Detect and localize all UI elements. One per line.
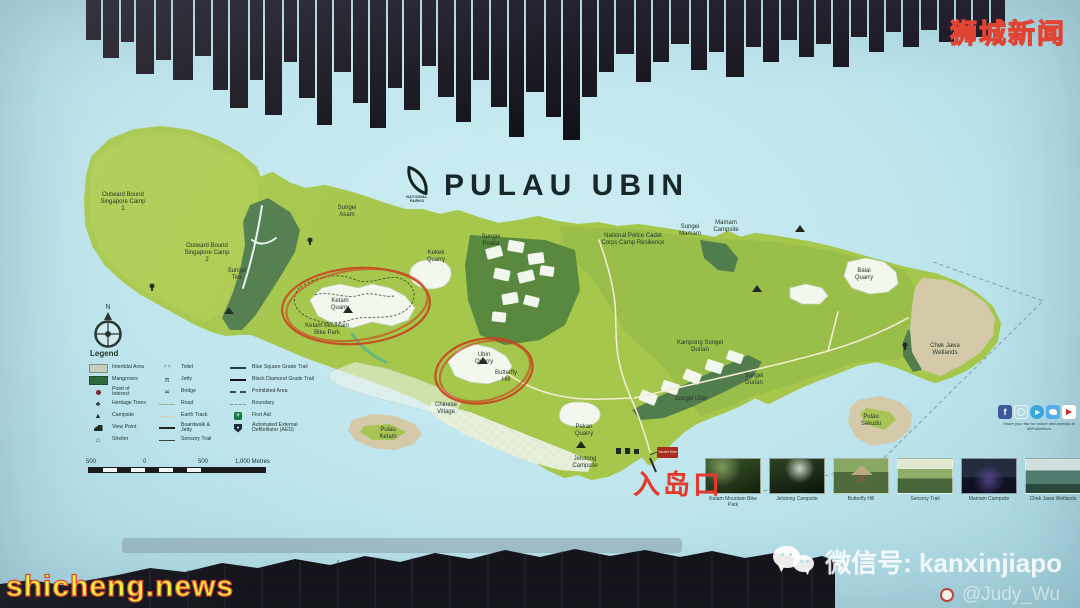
nparks-logo: NATIONAL PARKS xyxy=(402,168,432,204)
nparks-logo-text: NATIONAL PARKS xyxy=(402,195,432,204)
map-label-npcc: National Police Cadet Corps Camp Resilie… xyxy=(596,233,670,247)
view-point-icon xyxy=(94,425,103,431)
legend-item-view-point: View Point xyxy=(88,422,148,434)
facebook-icon: f xyxy=(998,405,1012,419)
first-aid-icon: + xyxy=(234,412,242,420)
instagram-icon xyxy=(1014,405,1028,419)
legend-item-earth-track: Earth Track xyxy=(157,410,219,422)
youtube-icon xyxy=(1062,405,1076,419)
map-label-butterfly-hill: Butterfly Hill xyxy=(492,370,520,384)
tent-icon: ▲ xyxy=(95,413,102,420)
legend-item-intertidal: Intertidal Area xyxy=(88,362,148,374)
legend-item-campsite: ▲Campsite xyxy=(88,410,148,422)
map-label-obs-camp1: Outward Bound Singapore Camp 1 xyxy=(100,192,146,213)
scale-label-1000-metres: 1,000 Metres xyxy=(235,459,270,465)
sensory-trail-line-sample xyxy=(159,440,175,441)
wechat-watermark: 微信号: kanxinjiapo xyxy=(773,543,1062,580)
map-label-sungei-puaka: Sungei Puaka xyxy=(476,234,506,248)
watermark-top-right: 狮城新闻 xyxy=(950,12,1066,51)
photo-sensory-trail: Sensory Trail xyxy=(897,458,953,508)
legend-column-2: ♂♀Toilet πJetty ≍Bridge Road Earth Track… xyxy=(157,362,219,446)
tree-icon: ♣ xyxy=(96,401,101,408)
legend-item-mangroves: Mangroves xyxy=(88,374,148,386)
map-label-ketam-quarry: Ketam Quarry xyxy=(326,298,354,312)
wechat-icon xyxy=(773,546,815,578)
prohibited-area-line-sample xyxy=(230,391,246,393)
map-label-sungei-ubin: Sungei Ubin xyxy=(669,396,713,403)
map-label-sungei-asam: Sungei Asam xyxy=(333,205,361,219)
twitter-icon xyxy=(1046,405,1060,419)
map-label-sungei-mamam: Sungei Mamam xyxy=(675,224,705,238)
photo-chek-jawa: Chek Jawa Wetlands xyxy=(1025,458,1080,508)
legend-title: Legend xyxy=(90,349,324,358)
legend-item-black-diamond-trail: Black Diamond Grade Trail xyxy=(228,374,324,386)
legend-item-jetty: πJetty xyxy=(157,374,219,386)
road-line-sample xyxy=(159,404,175,405)
map-label-sungei-tiris: Sungei Tiris xyxy=(224,268,250,282)
earth-track-line-sample xyxy=(159,416,175,417)
watermark-bottom-left: shicheng.news xyxy=(6,570,234,604)
map-label-obs-camp2: Outward Bound Singapore Camp 2 xyxy=(184,243,230,264)
jetty-icon: π xyxy=(165,377,170,384)
page-title: PULAU UBIN xyxy=(444,169,689,203)
scale-label-500-left: 500 xyxy=(86,459,96,465)
mangrove-swatch xyxy=(89,376,108,385)
social-media-block: f ▶ Share your trip for nature and anima… xyxy=(998,405,1080,432)
legend-column-1: Intertidal Area Mangroves Point of Inter… xyxy=(88,362,148,446)
legend-item-bridge: ≍Bridge xyxy=(157,386,219,398)
aed-shield-icon: ♥ xyxy=(234,424,242,433)
map-label-pekan-quarry: Pekan Quarry xyxy=(571,424,597,438)
social-caption: Share your trip for nature and animals a… xyxy=(998,421,1080,432)
map-label-ketam-mtb: Ketam Mountain Bike Park xyxy=(305,323,349,337)
map-label-balai-quarry: Balai Quarry xyxy=(851,268,877,282)
legend-item-first-aid: +First Aid xyxy=(228,410,324,422)
bridge-icon: ≍ xyxy=(164,389,170,396)
intertidal-swatch xyxy=(89,364,108,373)
photo-jelutong-campsite: Jelutong Campsite xyxy=(769,458,825,508)
map-label-jelutong-campsite: Jelutong Campsite xyxy=(570,456,600,470)
wechat-id-text: 微信号: kanxinjiapo xyxy=(825,543,1062,580)
map-label-ubin-quarry: Ubin Quarry xyxy=(471,352,497,366)
telegram-icon: ▶ xyxy=(1030,405,1044,419)
legend-item-heritage-trees: ♣Heritage Trees xyxy=(88,398,148,410)
photo-image xyxy=(833,458,889,494)
map-title-block: NATIONAL PARKS PULAU UBIN xyxy=(402,168,689,204)
nparks-leaf-icon xyxy=(402,166,432,196)
author-watermark: @Judy_Wu xyxy=(940,584,1060,606)
point-of-interest-icon xyxy=(96,390,101,395)
map-label-mamam-campsite: Mamam Campsite xyxy=(709,220,743,234)
photo-image xyxy=(897,458,953,494)
quarry-pekan xyxy=(559,402,600,427)
legend-item-boardwalk: Boardwalk & Jetty xyxy=(157,422,219,434)
legend-item-poi: Point of Interest xyxy=(88,386,148,398)
map-label-chinese-village: Chinese Village xyxy=(432,402,460,416)
map-label-chek-jawa: Chek Jawa Wetlands xyxy=(927,343,963,357)
wooden-planks-top xyxy=(86,0,1005,140)
legend-item-road: Road xyxy=(157,398,219,410)
photo-butterfly-hill: Butterfly Hill xyxy=(833,458,889,508)
map-sign-photo: N NATIONAL PARKS PULAU UBIN Outward Boun… xyxy=(0,0,1080,608)
legend-item-toilet: ♂♀Toilet xyxy=(157,362,219,374)
legend-item-shelter: ⌂Shelter xyxy=(88,434,148,446)
map-label-kampong-sungei-durian: Kampong Sungei Durian xyxy=(673,340,727,354)
shelter-icon: ⌂ xyxy=(96,437,100,444)
scale-bar: 500 0 500 1,000 Metres xyxy=(88,459,268,473)
author-handle: @Judy_Wu xyxy=(962,584,1060,606)
photo-image xyxy=(1025,458,1080,494)
toilet-icon: ♂♀ xyxy=(163,365,171,371)
photo-image xyxy=(961,458,1017,494)
quarry-kekek xyxy=(410,260,451,289)
legend-item-aed: ♥Automated External Defibrillator (AED) xyxy=(228,422,324,434)
photo-mamam-campsite: Mamam Campsite xyxy=(961,458,1017,508)
legend-item-prohibited-area: Prohibited Area xyxy=(228,386,324,398)
you-are-here-marker: You Are Here xyxy=(657,447,678,458)
scale-bar-segments xyxy=(88,467,266,473)
publisher-logo-icon xyxy=(940,588,954,602)
boardwalk-line-sample xyxy=(159,427,175,429)
boundary-line-sample xyxy=(230,404,246,405)
photo-strip: Ketam Mountain Bike Park Jelutong Campsi… xyxy=(705,458,1080,508)
scale-label-0: 0 xyxy=(143,459,146,465)
map-label-sungei-durian: Sungei Durian xyxy=(741,373,767,387)
legend-column-3: Blue Square Grade Trail Black Diamond Gr… xyxy=(228,362,324,446)
map-label-pulau-ketam: Pulau Ketam xyxy=(375,427,401,441)
legend: Legend Intertidal Area Mangroves Point o… xyxy=(88,349,324,446)
legend-item-blue-square-trail: Blue Square Grade Trail xyxy=(228,362,324,374)
entry-point-annotation: 入岛口 xyxy=(633,463,723,502)
compass-icon: N xyxy=(96,304,121,347)
compass-north-label: N xyxy=(105,304,110,311)
map-label-pulau-sekudu: Pulau Sekudu xyxy=(858,414,884,428)
map-label-kekek-quarry: Kekek Quarry xyxy=(422,250,450,264)
scale-label-500-right: 500 xyxy=(198,459,208,465)
blue-trail-line-sample xyxy=(230,367,246,369)
legend-item-sensory-trail: Sensory Trail xyxy=(157,434,219,446)
photo-image xyxy=(769,458,825,494)
legend-item-boundary: Boundary xyxy=(228,398,324,410)
black-trail-line-sample xyxy=(230,379,246,381)
map-artwork: N xyxy=(0,0,1080,608)
